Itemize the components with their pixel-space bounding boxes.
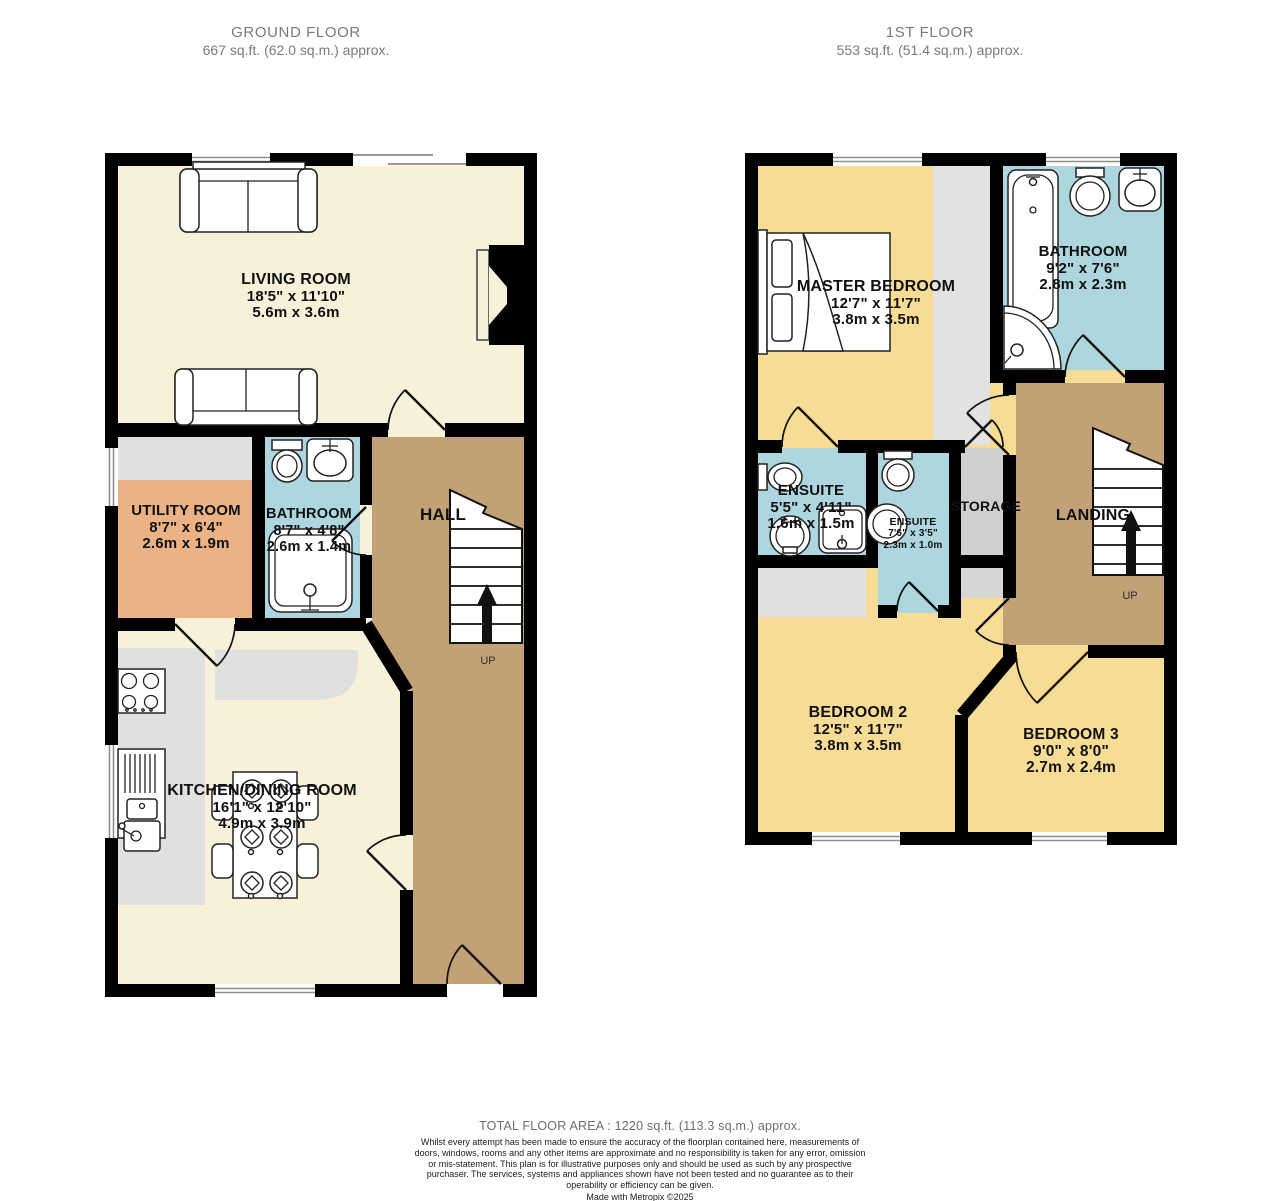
- storage-name: STORAGE: [951, 498, 1021, 515]
- utility-room-imperial: 8'7" x 6'4": [131, 520, 241, 537]
- first-floor-title: 1ST FLOOR 553 sq.ft. (51.4 sq.m.) approx…: [837, 24, 1024, 58]
- front-door-opening: [447, 984, 503, 997]
- ensuite2-metric: 2.3m x 1.0m: [884, 540, 943, 552]
- utility-room-metric: 2.6m x 1.9m: [131, 536, 241, 553]
- bathroom-ff-metric: 2.8m x 2.3m: [1039, 277, 1128, 294]
- floorplan-page: GROUND FLOOR 667 sq.ft. (62.0 sq.m.) app…: [0, 0, 1280, 1201]
- living-room-metric: 5.6m x 3.6m: [241, 305, 351, 322]
- living-room-imperial: 18'5" x 11'10": [241, 289, 351, 306]
- kitchen-counter-top: [215, 650, 358, 700]
- kitchen-name: KITCHEN/DINING ROOM: [167, 783, 357, 800]
- room-label-kitchen: KITCHEN/DINING ROOM 16'1" x 12'10" 4.9m …: [167, 783, 357, 833]
- sink-icon-ff: [1119, 168, 1161, 211]
- chair-icon: [212, 844, 233, 878]
- bedroom3-imperial: 9'0" x 8'0": [1023, 744, 1119, 761]
- ground-floor-title: GROUND FLOOR 667 sq.ft. (62.0 sq.m.) app…: [203, 24, 390, 58]
- ensuite1-name: ENSUITE: [767, 483, 854, 500]
- utility-room-name: UTILITY ROOM: [131, 503, 241, 520]
- landing-name: LANDING: [1056, 508, 1130, 525]
- bedroom2-metric: 3.8m x 3.5m: [809, 738, 908, 755]
- kitchen-imperial: 16'1" x 12'10": [167, 800, 357, 817]
- room-label-master-bedroom: MASTER BEDROOM 12'7" x 11'7" 3.8m x 3.5m: [797, 279, 955, 329]
- corridor-gray: [961, 565, 1003, 598]
- hob-icon: [118, 669, 165, 713]
- room-label-landing: LANDING: [1056, 508, 1130, 525]
- room-label-utility-room: UTILITY ROOM 8'7" x 6'4" 2.6m x 1.9m: [131, 503, 241, 553]
- ensuite1-metric: 1.6m x 1.5m: [767, 516, 854, 533]
- room-label-bathroom-ff: BATHROOM 9'2" x 7'6" 2.8m x 2.3m: [1039, 244, 1128, 294]
- bathroom-gf-name: BATHROOM: [266, 506, 352, 523]
- fireplace-icon: [477, 245, 524, 345]
- toilet-icon-ff: [1070, 168, 1110, 216]
- room-label-ensuite2: ENSUITE 7'6" x 3'5" 2.3m x 1.0m: [884, 516, 943, 552]
- room-label-living-room: LIVING ROOM 18'5" x 11'10" 5.6m x 3.6m: [241, 272, 351, 322]
- total-floor-area: TOTAL FLOOR AREA : 1220 sq.ft. (113.3 sq…: [414, 1119, 866, 1133]
- bedroom3-metric: 2.7m x 2.4m: [1023, 760, 1119, 777]
- bedroom2-doorway-floor: [1003, 598, 1016, 645]
- bedroom2-name: BEDROOM 2: [809, 705, 908, 722]
- master-bedroom-metric: 3.8m x 3.5m: [797, 312, 955, 329]
- bedroom3-name: BEDROOM 3: [1023, 727, 1119, 744]
- up-label-ground: UP: [480, 655, 495, 667]
- ground-floor-area-text: 667 sq.ft. (62.0 sq.m.) approx.: [203, 42, 390, 58]
- bathroom-ff-imperial: 9'2" x 7'6": [1039, 261, 1128, 278]
- bathroom-ff-name: BATHROOM: [1039, 244, 1128, 261]
- room-label-storage: STORAGE: [951, 498, 1021, 515]
- room-label-hall: HALL: [420, 507, 466, 524]
- disclaimer-text: Whilst every attempt has been made to en…: [414, 1137, 866, 1191]
- pillow-icon: [772, 240, 792, 287]
- toilet-icon-ensuite2: [882, 451, 914, 491]
- bedroom2-imperial: 12'5" x 11'7": [809, 722, 908, 739]
- chair-icon: [297, 844, 318, 878]
- ensuite2-imperial: 7'6" x 3'5": [884, 528, 943, 540]
- footer: TOTAL FLOOR AREA : 1220 sq.ft. (113.3 sq…: [414, 1119, 866, 1201]
- sofa-icon-bottom: [175, 369, 317, 425]
- room-label-bedroom2: BEDROOM 2 12'5" x 11'7" 3.8m x 3.5m: [809, 705, 908, 755]
- first-floor-title-text: 1ST FLOOR: [837, 24, 1024, 41]
- toilet-icon-gf: [272, 440, 302, 482]
- bathroom-gf-imperial: 8'7" x 4'8": [266, 523, 352, 540]
- kitchen-sink-icon: [118, 749, 165, 851]
- room-label-bathroom-gf: BATHROOM 8'7" x 4'8" 2.6m x 1.4m: [266, 506, 352, 556]
- master-bedroom-name: MASTER BEDROOM: [797, 279, 955, 296]
- utility-counter: [118, 437, 252, 480]
- bedroom2-wardrobe: [758, 562, 866, 617]
- kitchen-metric: 4.9m x 3.9m: [167, 816, 357, 833]
- sofa-icon-top: [180, 162, 317, 232]
- up-label-first: UP: [1122, 590, 1137, 602]
- pillow-icon: [772, 294, 792, 341]
- master-bedroom-imperial: 12'7" x 11'7": [797, 296, 955, 313]
- room-label-ensuite1: ENSUITE 5'5" x 4'11" 1.6m x 1.5m: [767, 483, 854, 533]
- ground-floor-title-text: GROUND FLOOR: [203, 24, 390, 41]
- hall-name: HALL: [420, 507, 466, 524]
- room-label-bedroom3: BEDROOM 3 9'0" x 8'0" 2.7m x 2.4m: [1023, 727, 1119, 777]
- first-floor-area-text: 553 sq.ft. (51.4 sq.m.) approx.: [837, 42, 1024, 58]
- living-room-name: LIVING ROOM: [241, 272, 351, 289]
- ensuite1-imperial: 5'5" x 4'11": [767, 500, 854, 517]
- sink-icon-gf: [307, 439, 353, 481]
- ensuite2-name: ENSUITE: [884, 516, 943, 528]
- metropix-credit: Made with Metropix ©2025: [414, 1192, 866, 1201]
- bathroom-gf-metric: 2.6m x 1.4m: [266, 539, 352, 556]
